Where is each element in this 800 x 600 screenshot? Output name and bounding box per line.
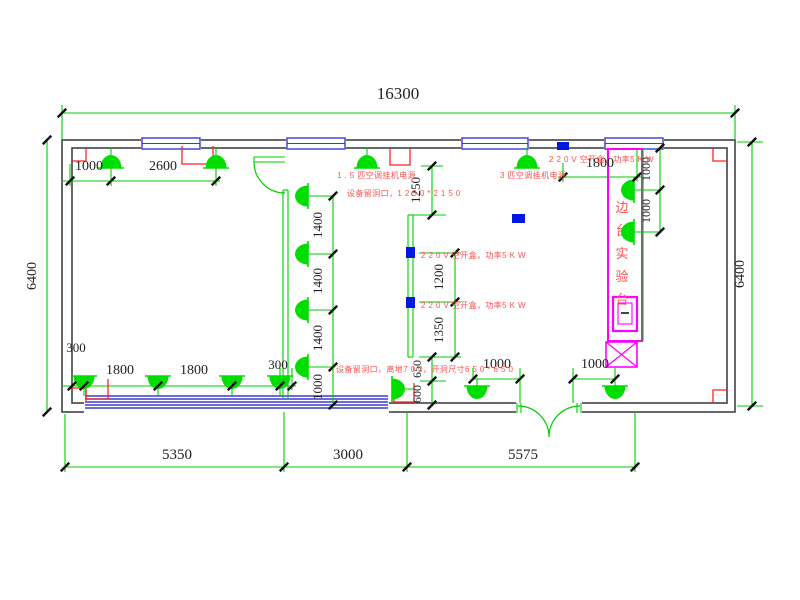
annotation-text: 3 匹空调挂机电源 (500, 170, 566, 180)
dimension-label: 300 (66, 340, 86, 355)
dimension-label: 1000 (75, 159, 103, 174)
red-opening-mark (390, 147, 410, 165)
dimension-label: 1000 (310, 374, 325, 400)
lamp-icon (467, 386, 488, 399)
dimension-label: 1350 (431, 317, 446, 343)
dimension-label: 1000 (581, 357, 609, 372)
annotation-text: 1 . 5 匹空调挂机电源 (337, 170, 416, 180)
annotation-text: 设备留洞口，1 2 5 0 * 2 1 5 0 (347, 188, 461, 198)
lamp-icon (357, 155, 378, 168)
dimension-label: 3000 (333, 447, 363, 463)
dimension-label: 16300 (377, 84, 420, 103)
lamp-icon (295, 357, 308, 378)
dimension-label: 5575 (508, 447, 538, 463)
lamp-icon (517, 155, 538, 168)
dimension-label: 1200 (431, 264, 446, 290)
dimension-label: 300 (268, 357, 288, 372)
lamp-icon (295, 300, 308, 321)
dimension-label: 600 (410, 385, 424, 403)
annotation-text: 2 2 0 V 空开盒，功率5 K W (549, 154, 654, 164)
bench-label-char: 验 (615, 269, 628, 284)
annotation-text: 2 2 0 V 空开盒，功率5 K W (421, 300, 526, 310)
power-socket (512, 214, 525, 223)
dimension-label: 1400 (310, 212, 325, 238)
power-socket (406, 297, 415, 308)
annotation-text: 2 2 0 V 空开盒，功率5 K W (421, 250, 526, 260)
red-opening-mark (713, 390, 727, 403)
dimension-label: 6400 (733, 260, 748, 288)
lamp-icon (392, 379, 405, 400)
lamp-icon (605, 386, 626, 399)
power-socket (557, 142, 569, 150)
dimension-label: 1000 (639, 199, 653, 223)
lamp-icon (101, 155, 122, 168)
dimension-label: 1400 (310, 325, 325, 351)
dimension-label: 1800 (180, 363, 208, 378)
bench-label-char: 台 (615, 292, 628, 307)
lamp-icon (295, 244, 308, 265)
annotation-text: 设备留洞口，离地7 0 0，开洞尺寸6 5 0 * 6 5 0 (336, 364, 513, 374)
dimension-label: 1400 (310, 268, 325, 294)
lamp-icon (206, 155, 227, 168)
floor-plan-svg: 边台实验台16300640064001000260018001000100012… (0, 0, 800, 600)
lamp-icon (295, 186, 308, 207)
dimension-label: 1800 (106, 363, 134, 378)
door-swing-arc (254, 162, 285, 193)
dimension-label: 2600 (149, 159, 177, 174)
wall-opening (516, 393, 582, 414)
power-socket (406, 247, 415, 258)
red-opening-mark (713, 148, 727, 161)
cad-floor-plan-canvas: 边台实验台16300640064001000260018001000100012… (0, 0, 800, 600)
dimension-label: 6400 (25, 262, 40, 290)
lamp-icon (621, 180, 634, 201)
bench-label-char: 边 (615, 200, 628, 215)
bench-label-char: 实 (615, 246, 628, 261)
dimension-label: 5350 (162, 447, 192, 463)
